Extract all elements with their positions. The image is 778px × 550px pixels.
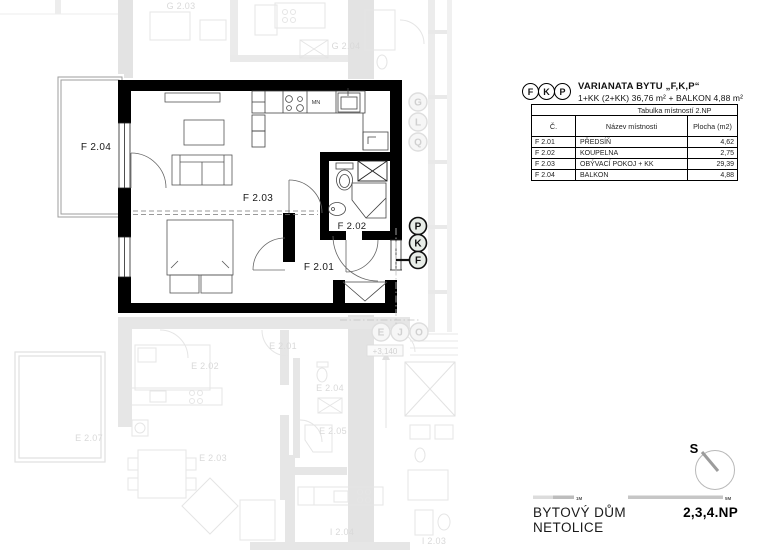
level-mark: +3,140 bbox=[367, 345, 403, 356]
kitchen-mn-label: MN bbox=[312, 100, 321, 106]
table-row: F 2.04 BALKON 4,88 bbox=[532, 170, 738, 181]
bg-variant-circles-glq: G L Q bbox=[409, 93, 427, 151]
svg-text:E: E bbox=[378, 328, 385, 339]
svg-text:O: O bbox=[415, 328, 423, 339]
floors-label: 2,3,4.NP bbox=[683, 505, 738, 520]
room-name: KOUPELNA bbox=[576, 148, 688, 159]
variant-subtitle: 1+KK (2+KK) 36,76 m² + BALKON 4,88 m² bbox=[578, 93, 743, 103]
bg-room-label: E 2.02 bbox=[191, 361, 219, 371]
scale-bars: 1M 5M bbox=[533, 496, 732, 502]
room-area: 2,75 bbox=[688, 148, 738, 159]
bg-room-label: E 2.05 bbox=[319, 426, 347, 436]
variant-title: VARIANATA BYTU „F,K,P“ bbox=[578, 81, 700, 92]
badge-p: P bbox=[554, 83, 571, 100]
room-code: F 2.03 bbox=[532, 159, 576, 170]
table-header-row: Č. Název místnosti Plocha (m2) bbox=[532, 116, 738, 137]
table-row: F 2.03 OBÝVACÍ POKOJ + KK 29,39 bbox=[532, 159, 738, 170]
svg-text:Q: Q bbox=[414, 138, 422, 149]
badge-f: F bbox=[522, 83, 539, 100]
svg-text:+3,140: +3,140 bbox=[373, 347, 398, 356]
table-row: F 2.02 KOUPELNA 2,75 bbox=[532, 148, 738, 159]
bedroom-window bbox=[118, 237, 131, 277]
bg-room-label: E 2.04 bbox=[316, 383, 344, 393]
room-area: 29,39 bbox=[688, 159, 738, 170]
scale-small-label: 1M bbox=[576, 496, 583, 501]
bg-room-label: I 2.04 bbox=[330, 527, 354, 537]
svg-text:L: L bbox=[415, 118, 421, 129]
table-title: Tabulka místností 2.NP bbox=[532, 105, 738, 116]
room-label-f203: F 2.03 bbox=[243, 193, 273, 204]
svg-text:P: P bbox=[415, 222, 422, 233]
bg-room-label: E 2.01 bbox=[269, 341, 297, 351]
room-label-f202: F 2.02 bbox=[338, 221, 367, 232]
north-label: S bbox=[690, 441, 699, 456]
room-code: F 2.01 bbox=[532, 137, 576, 148]
room-area: 4,62 bbox=[688, 137, 738, 148]
bg-room-label: G 2.03 bbox=[167, 1, 196, 11]
col-header-code: Č. bbox=[532, 116, 576, 137]
scale-large-label: 5M bbox=[725, 496, 732, 501]
bg-variant-circles-ejo: E J O bbox=[372, 323, 428, 341]
footer-title-line: BYTOVÝ DŮM NETOLICE 2,3,4.NP bbox=[533, 505, 738, 535]
room-label-f204: F 2.04 bbox=[81, 142, 111, 153]
col-header-name: Název místnosti bbox=[576, 116, 688, 137]
room-code: F 2.02 bbox=[532, 148, 576, 159]
svg-text:F: F bbox=[415, 256, 421, 267]
bg-room-label: G 2.04 bbox=[332, 41, 361, 51]
room-table: Tabulka místností 2.NP Č. Název místnost… bbox=[531, 104, 738, 181]
shaft bbox=[358, 161, 387, 181]
room-name: PŘEDSÍŇ bbox=[576, 137, 688, 148]
building-name: BYTOVÝ DŮM NETOLICE bbox=[533, 505, 683, 535]
header-variant-badges: F K P bbox=[522, 83, 570, 100]
room-name: BALKON bbox=[576, 170, 688, 181]
svg-text:K: K bbox=[414, 239, 422, 250]
room-name: OBÝVACÍ POKOJ + KK bbox=[576, 159, 688, 170]
room-area: 4,88 bbox=[688, 170, 738, 181]
svg-text:J: J bbox=[397, 328, 403, 339]
north-compass: S bbox=[690, 441, 735, 490]
bg-room-label: E 2.07 bbox=[75, 433, 103, 443]
bg-room-label: E 2.03 bbox=[199, 453, 227, 463]
bg-room-label: I 2.03 bbox=[422, 536, 446, 546]
room-label-f201: F 2.01 bbox=[304, 262, 334, 273]
room-code: F 2.04 bbox=[532, 170, 576, 181]
col-header-area: Plocha (m2) bbox=[688, 116, 738, 137]
floorplan-sheet: +3,140 G L Q E J O G 2.03 G 2.04 E 2.01 … bbox=[0, 0, 778, 550]
balcony-window bbox=[118, 123, 131, 188]
table-row: F 2.01 PŘEDSÍŇ 4,62 bbox=[532, 137, 738, 148]
table-title-row: Tabulka místností 2.NP bbox=[532, 105, 738, 116]
badge-k: K bbox=[538, 83, 555, 100]
svg-text:G: G bbox=[414, 98, 422, 109]
